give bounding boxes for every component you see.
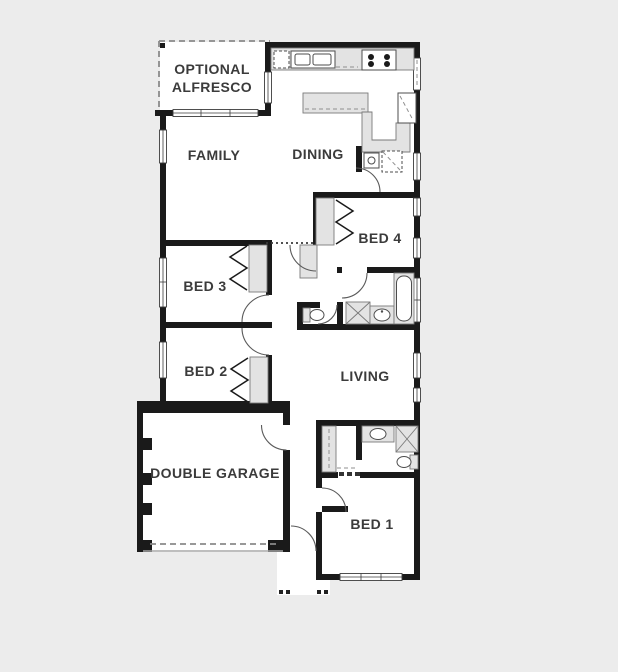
linen-cupboard	[300, 245, 317, 278]
alfresco-sliding-window	[173, 110, 258, 117]
ensuite-shower	[396, 426, 418, 452]
bed3-window	[160, 258, 167, 307]
cooktop	[362, 50, 396, 70]
dishwasher	[274, 51, 289, 68]
bath-window	[414, 278, 421, 322]
vanity-basin	[370, 306, 394, 324]
laundry-window	[414, 153, 421, 180]
bed1-window	[340, 574, 402, 581]
label-bed4: BED 4	[358, 230, 401, 246]
label-garage: DOUBLE GARAGE	[150, 465, 280, 481]
living-window-b	[414, 388, 421, 402]
bed2-window	[160, 342, 167, 378]
label-family: FAMILY	[188, 147, 241, 163]
label-bed3: BED 3	[183, 278, 226, 294]
label-dining: DINING	[292, 146, 343, 162]
bed4-window-b	[414, 238, 421, 258]
laundry-tub	[364, 153, 379, 168]
robe-opening-dashes	[339, 472, 360, 476]
washing-machine	[382, 151, 402, 172]
garage-pier	[143, 503, 152, 515]
garage-pier	[143, 438, 152, 450]
pantry-shelving	[414, 58, 421, 90]
island-bench	[303, 93, 368, 113]
bathtub	[394, 273, 414, 324]
label-alfresco-line1: OPTIONAL	[174, 61, 250, 77]
label-living: LIVING	[340, 368, 389, 384]
floor-main	[160, 42, 420, 407]
alfresco-corner-post	[160, 43, 165, 48]
label-bed1: BED 1	[350, 516, 393, 532]
ensuite-toilet	[397, 455, 418, 469]
corner-pantry	[398, 93, 416, 123]
living-window-a	[414, 353, 421, 378]
shower	[346, 302, 370, 324]
label-alfresco-line2: ALFRESCO	[172, 79, 252, 95]
ensuite-basin	[362, 426, 394, 442]
family-window	[160, 130, 167, 163]
floor-plan: OPTIONAL ALFRESCO FAMILY DINING BED 4 BE…	[0, 0, 618, 672]
bed4-window-a	[414, 198, 421, 216]
floor-porch	[277, 552, 330, 595]
kitchen-side-window	[265, 72, 272, 103]
kitchen-sink	[291, 51, 335, 68]
label-bed2: BED 2	[184, 363, 227, 379]
toilet	[303, 308, 324, 322]
